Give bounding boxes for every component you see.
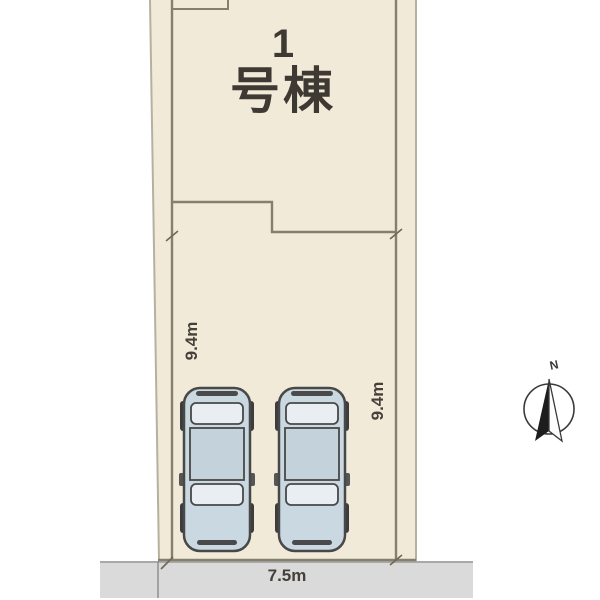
dimension-frontage-label: 7.5m: [268, 566, 307, 586]
building-number: 1: [230, 24, 336, 64]
car-icon-right: [274, 388, 350, 551]
car-icon-left: [179, 388, 255, 551]
dimension-right-depth-label: 9.4m: [368, 382, 388, 421]
building-label: 1 号棟: [230, 24, 336, 116]
building-name: 号棟: [230, 66, 336, 116]
dimension-left-depth-label: 9.4m: [182, 322, 202, 361]
site-plan: 1 号棟 9.4m 9.4m 7.5m N: [0, 0, 600, 600]
compass-icon: [524, 379, 574, 441]
